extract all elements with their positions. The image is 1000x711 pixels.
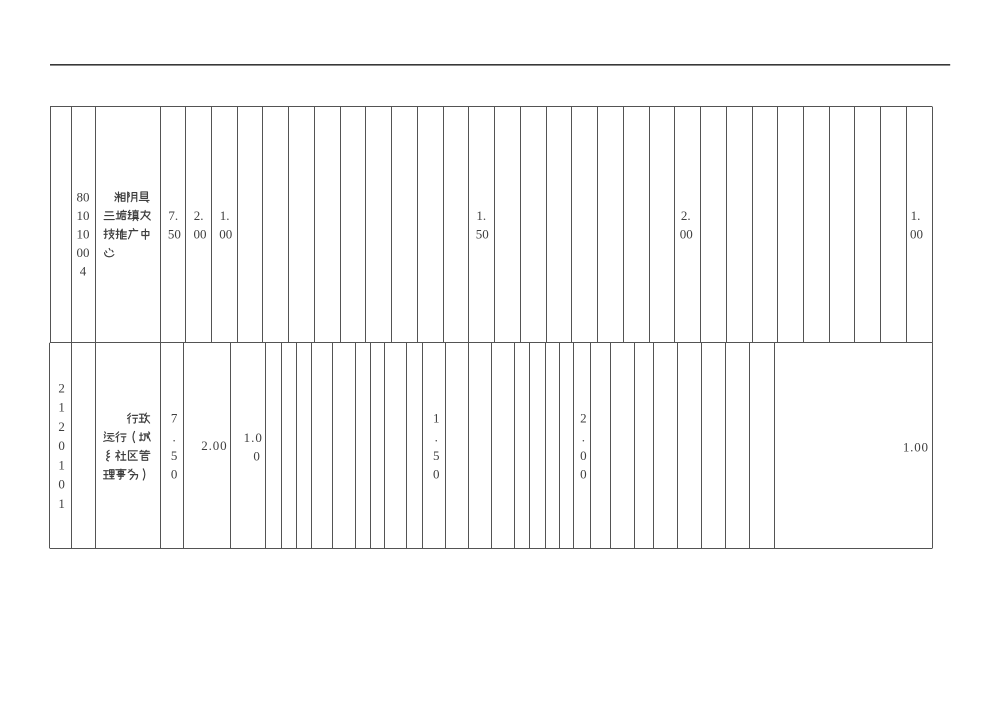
svg-text:7.: 7. [168,208,178,223]
svg-text:00: 00 [219,226,232,241]
svg-text:0: 0 [580,448,587,463]
svg-text:10: 10 [77,226,90,241]
svg-text:1.00: 1.00 [903,440,929,455]
svg-text:1.: 1. [476,208,486,223]
svg-text:2: 2 [580,411,587,426]
svg-text:0: 0 [580,467,587,482]
svg-text:5: 5 [171,448,178,463]
svg-text:0: 0 [58,438,65,453]
svg-text:.: . [582,429,585,444]
svg-text:00: 00 [194,226,207,241]
svg-text:00: 00 [910,226,923,241]
svg-text:.: . [172,429,175,444]
svg-text:80: 80 [77,189,90,204]
svg-text:1: 1 [433,411,440,426]
svg-text:10: 10 [77,208,90,223]
svg-text:2.: 2. [194,208,204,223]
svg-text:5: 5 [433,448,440,463]
svg-text:2.: 2. [681,208,691,223]
svg-text:1: 1 [58,496,65,511]
svg-text:0: 0 [171,467,178,482]
svg-text:7: 7 [171,411,178,426]
svg-text:1.: 1. [911,208,921,223]
svg-text:00: 00 [77,245,90,260]
svg-text:0: 0 [253,449,260,464]
svg-text:00: 00 [680,226,693,241]
svg-text:1.0: 1.0 [244,430,263,445]
svg-text:1.: 1. [220,208,230,223]
svg-text:.: . [435,429,438,444]
svg-text:1: 1 [58,457,65,472]
svg-text:1: 1 [58,400,65,415]
svg-text:2: 2 [58,419,65,434]
svg-text:0: 0 [58,477,65,492]
svg-text:2.00: 2.00 [201,438,227,453]
svg-text:0: 0 [433,467,440,482]
svg-text:4: 4 [80,264,87,279]
svg-text:50: 50 [476,226,489,241]
svg-text:2: 2 [58,381,65,396]
svg-text:50: 50 [168,226,181,241]
